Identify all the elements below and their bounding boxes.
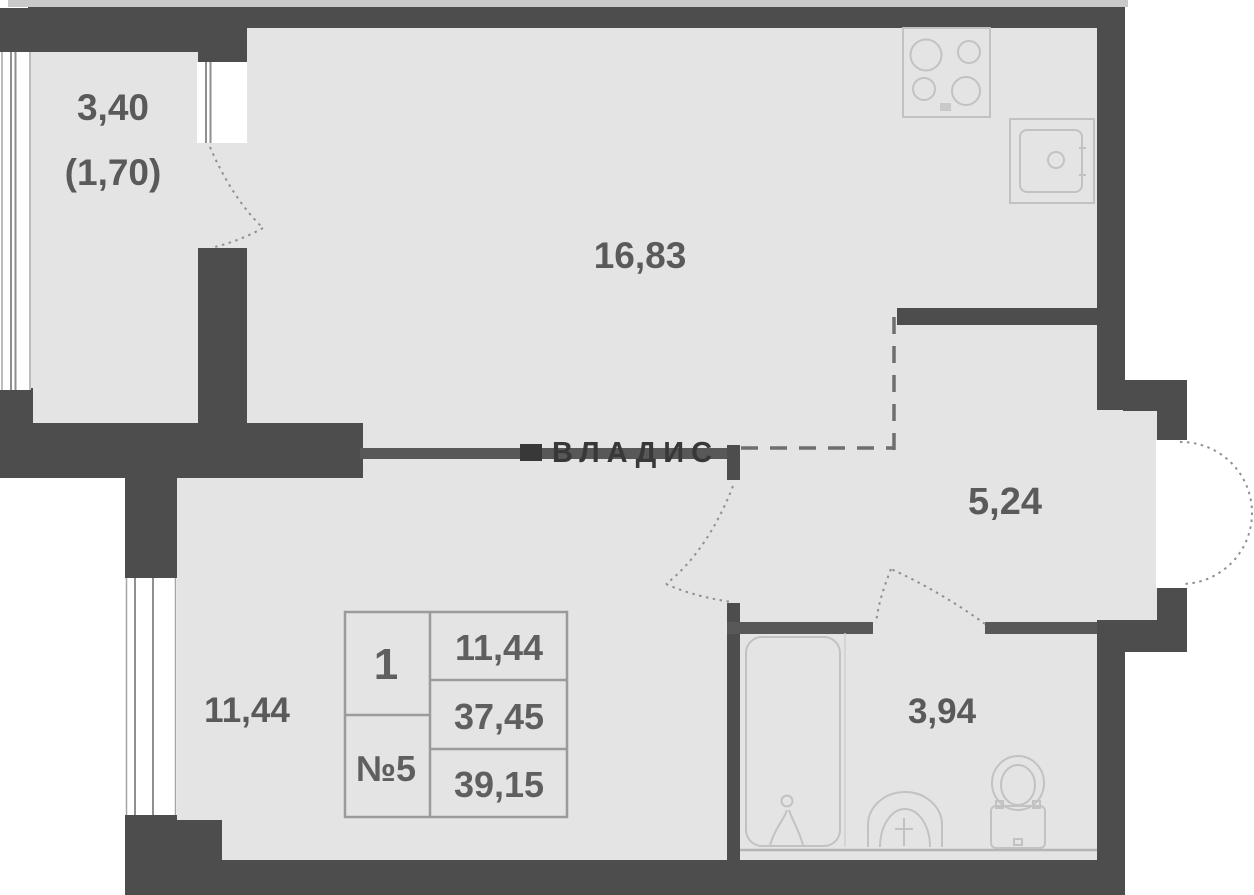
floor-plan: ВЛАДИС 3,40 (1,70) 16,83 5,24 11,44 3,94… — [0, 0, 1254, 895]
watermark-logo-icon — [520, 444, 542, 461]
area-without-summer-value: 37,45 — [454, 696, 544, 737]
balcony-area-label: 3,40 — [77, 87, 149, 128]
unit-number-value: №5 — [356, 748, 416, 789]
bedroom-area-label: 11,44 — [204, 691, 290, 730]
balcony-window — [0, 52, 31, 390]
balcony-reduced-area-label: (1,70) — [65, 152, 162, 193]
bathroom-area-label: 3,94 — [908, 692, 977, 731]
hallway-area-label: 5,24 — [968, 481, 1042, 523]
living-area-value: 11,44 — [455, 627, 543, 668]
watermark-label: ВЛАДИС — [552, 437, 719, 469]
entrance-door-opening — [1156, 440, 1192, 588]
balcony-door-window — [197, 62, 247, 143]
kitchen-living-area-label: 16,83 — [594, 235, 687, 276]
canvas-edge-strip — [8, 0, 1128, 7]
bedroom-window — [125, 578, 177, 815]
info-table: 1 №5 11,44 37,45 39,15 — [345, 612, 567, 817]
total-area-value: 39,15 — [454, 764, 544, 805]
rooms-count-value: 1 — [374, 640, 398, 689]
